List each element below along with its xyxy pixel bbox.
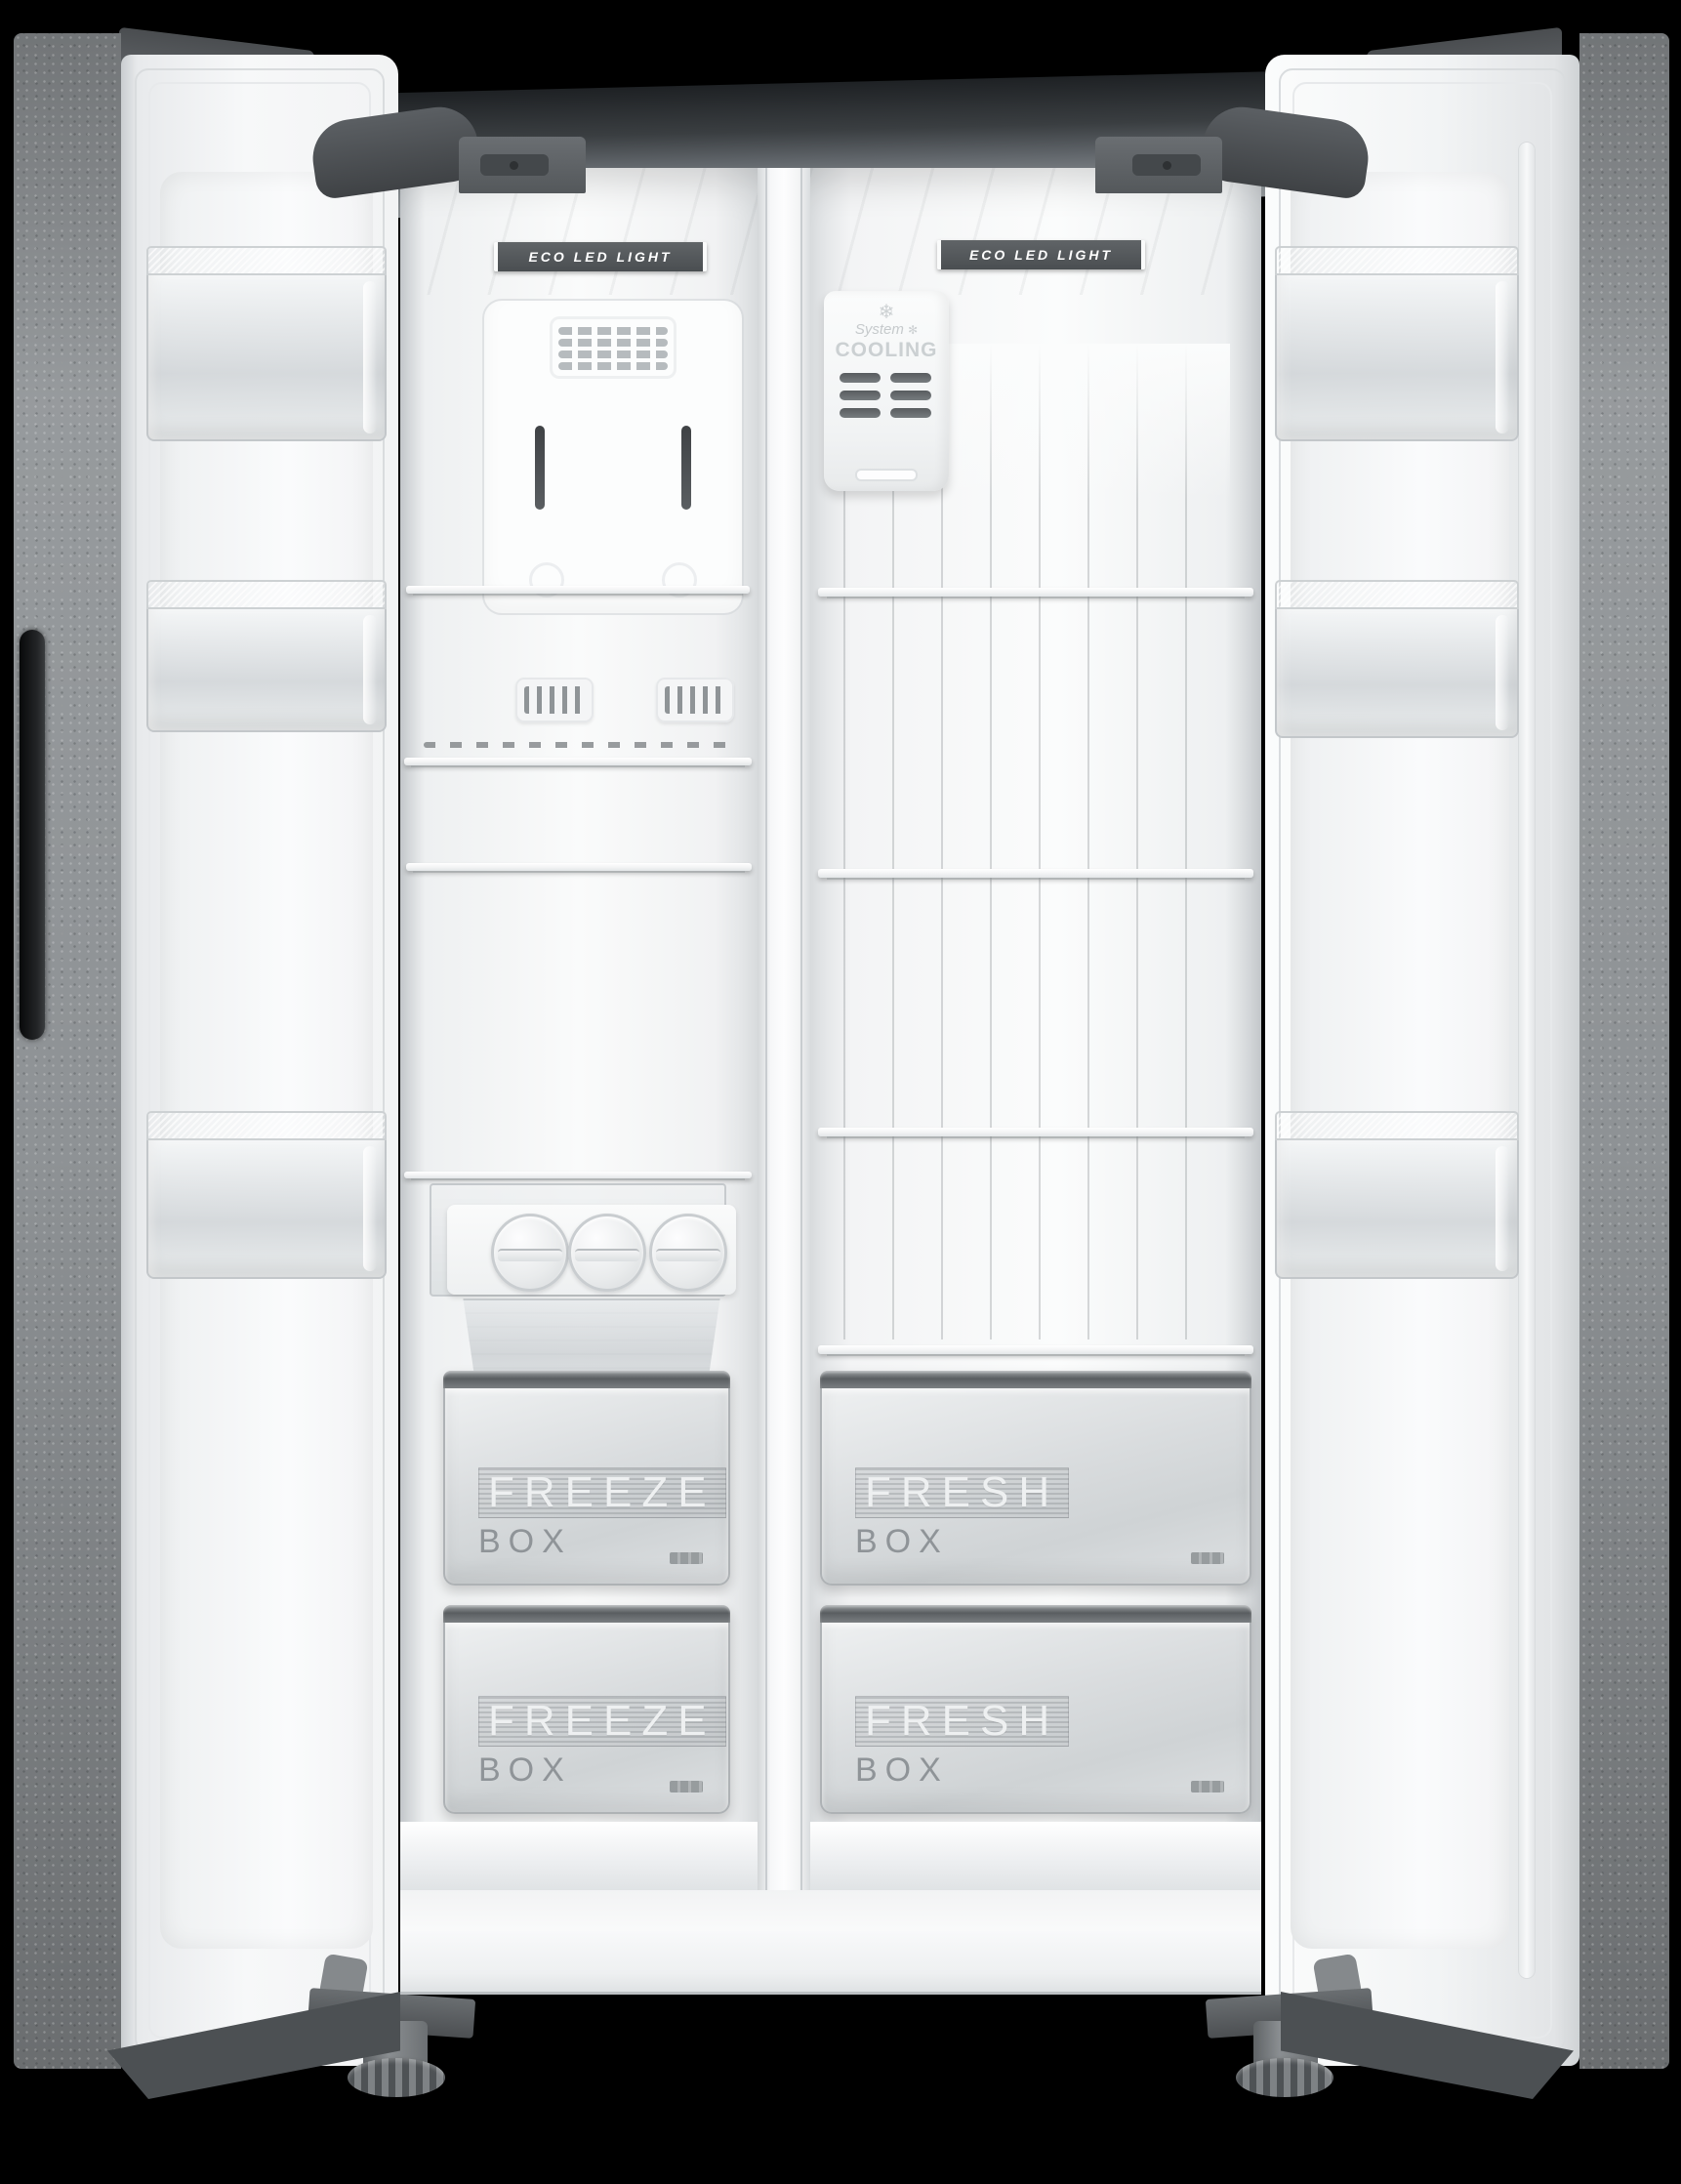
right-door-bin-3 [1275,1111,1519,1279]
left-leveling-foot [348,2058,445,2097]
hinge-arm [1198,103,1373,201]
drawer-marking [670,1781,703,1793]
fridge-shelf-2 [818,869,1253,878]
left-door-bin-3 [146,1111,387,1279]
drawer-title: FRESH [865,1468,1059,1516]
vent-slot-row [558,339,668,347]
fridge-led-label: ECO LED LIGHT [969,248,1113,262]
drawer-face: FRESH BOX [820,1388,1251,1586]
freezer-floor [400,1822,758,1890]
fridge-shelf-3 [818,1128,1253,1136]
ice-maker-knob-2 [568,1214,646,1292]
drawer-rail [443,1371,730,1388]
drawer-title-panel: FREEZE [478,1696,726,1747]
door-edge-ridge [1519,143,1535,1978]
drawer-symbol-icons [1191,1552,1224,1564]
hinge-slot [480,154,549,176]
bin-highlight [363,281,377,433]
cooling-vent-grille [840,373,933,418]
right-leveling-foot [1236,2058,1333,2097]
drawer-marking [670,1552,703,1564]
ice-maker-knob-3 [649,1214,727,1292]
bin-body [1275,609,1519,738]
divider-line [765,168,767,1890]
bin-rim [146,1111,387,1140]
right-door-exterior [1579,33,1669,2069]
fridge-shelf-1 [818,588,1253,597]
freezer-led-label: ECO LED LIGHT [528,250,672,264]
drawer-face: FRESH BOX [820,1623,1251,1814]
cooling-unit-line2: COOLING [824,339,949,361]
freezer-led-strip: ECO LED LIGHT [494,242,707,271]
fresh-box-drawer-1: FRESH BOX [820,1371,1251,1586]
drawer-label: FRESH BOX [855,1467,1069,1558]
cooling-unit: ❄ System ✻ COOLING [824,291,949,491]
left-door-bin-1 [146,246,387,441]
panel-slot-right [681,426,691,510]
freezer-shelf-3 [406,863,752,871]
fresh-box-drawer-2: FRESH BOX [820,1605,1251,1814]
freeze-box-drawer-2: FREEZE BOX [443,1605,730,1814]
bin-body [1275,275,1519,441]
drawer-face: FREEZE BOX [443,1388,730,1586]
drawer-label: FRESH BOX [855,1696,1069,1787]
fridge-led-strip: ECO LED LIGHT [937,240,1145,269]
freezer-shelf-1 [406,586,750,594]
left-door-bin-2 [146,580,387,732]
vent-slot [890,391,931,400]
fridge-shelf-4 [818,1345,1253,1354]
base-strip [400,1931,1261,1995]
bin-rim [1275,1111,1519,1140]
bin-rim [1275,580,1519,609]
screw-icon [1163,161,1171,170]
drawer-rail [820,1371,1251,1388]
drawer-title-panel: FREEZE [478,1467,726,1518]
left-top-hinge [312,94,605,201]
cooling-system-text: System [855,321,904,338]
snowflake-icon: ❄ [824,303,949,322]
hinge-plate [459,137,586,193]
base-plinth [400,1890,1261,1935]
freezer-shelf-2 [404,758,752,765]
right-door-bin-1 [1275,246,1519,441]
drawer-subtitle: BOX [855,1525,1069,1558]
cooling-unit-latch [855,469,918,481]
vent-slot [890,373,931,383]
freezer-shelf-4 [404,1172,752,1178]
bin-body [146,275,387,441]
vent-slot [890,408,931,418]
screw-icon [510,161,518,170]
vent-slot-row [558,350,668,358]
drawer-rail [820,1605,1251,1623]
freezer-compartment: ECO LED LIGHT [400,168,758,1890]
vent-slots [665,686,725,714]
bin-rim [146,580,387,609]
center-divider [758,168,810,1890]
freeze-box-drawer-1: FREEZE BOX [443,1371,730,1586]
drawer-title: FREEZE [488,1468,717,1516]
vent-slot [840,408,881,418]
drawer-label: FREEZE BOX [478,1467,726,1558]
bin-highlight [1496,615,1509,730]
vent-slot [840,391,881,400]
hinge-slot [1132,154,1201,176]
bin-body [1275,1140,1519,1279]
vent-slots [524,686,585,714]
bin-highlight [363,1146,377,1271]
bin-rim [1275,246,1519,275]
panel-slot-left [535,426,545,510]
bin-rim [146,246,387,275]
vent-grille [550,316,676,379]
bin-highlight [1496,281,1509,433]
sparkle-icon: ✻ [908,323,918,337]
drawer-title: FRESH [865,1697,1059,1745]
bin-highlight [363,615,377,724]
freezer-back-panel [484,301,742,613]
vent-slot [840,373,881,383]
drawer-title-panel: FRESH [855,1696,1069,1747]
right-top-hinge [1076,94,1369,201]
divider-line [800,168,802,1890]
bin-body [146,609,387,732]
vent-dash-row [424,742,734,748]
bin-body [146,1140,387,1279]
hinge-arm [307,103,482,201]
freezer-air-vent-panel [400,666,758,773]
bin-highlight [1496,1146,1509,1271]
drawer-title: FREEZE [488,1697,717,1745]
hinge-plate [1095,137,1222,193]
fridge-floor [810,1822,1261,1890]
vent-slot-row [558,362,668,370]
drawer-face: FREEZE BOX [443,1623,730,1814]
ice-maker-knob-panel [447,1205,736,1295]
right-door-bin-2 [1275,580,1519,738]
left-door-exterior [14,33,121,2069]
drawer-subtitle: BOX [855,1753,1069,1787]
left-door-handle [20,630,45,1040]
drawer-symbol-icons [1191,1781,1224,1793]
drawer-label: FREEZE BOX [478,1696,726,1787]
drawer-rail [443,1605,730,1623]
air-vent-grille-right [656,678,734,722]
vent-slot-row [558,327,668,335]
cooling-unit-line1: System ✻ [824,322,949,339]
drawer-title-panel: FRESH [855,1467,1069,1518]
scene: ECO LED LIGHT [0,0,1681,2184]
fridge-compartment: ECO LED LIGHT ❄ System ✻ COOLING [810,168,1261,1890]
ice-maker-knob-1 [491,1214,569,1292]
air-vent-grille-left [515,678,594,722]
